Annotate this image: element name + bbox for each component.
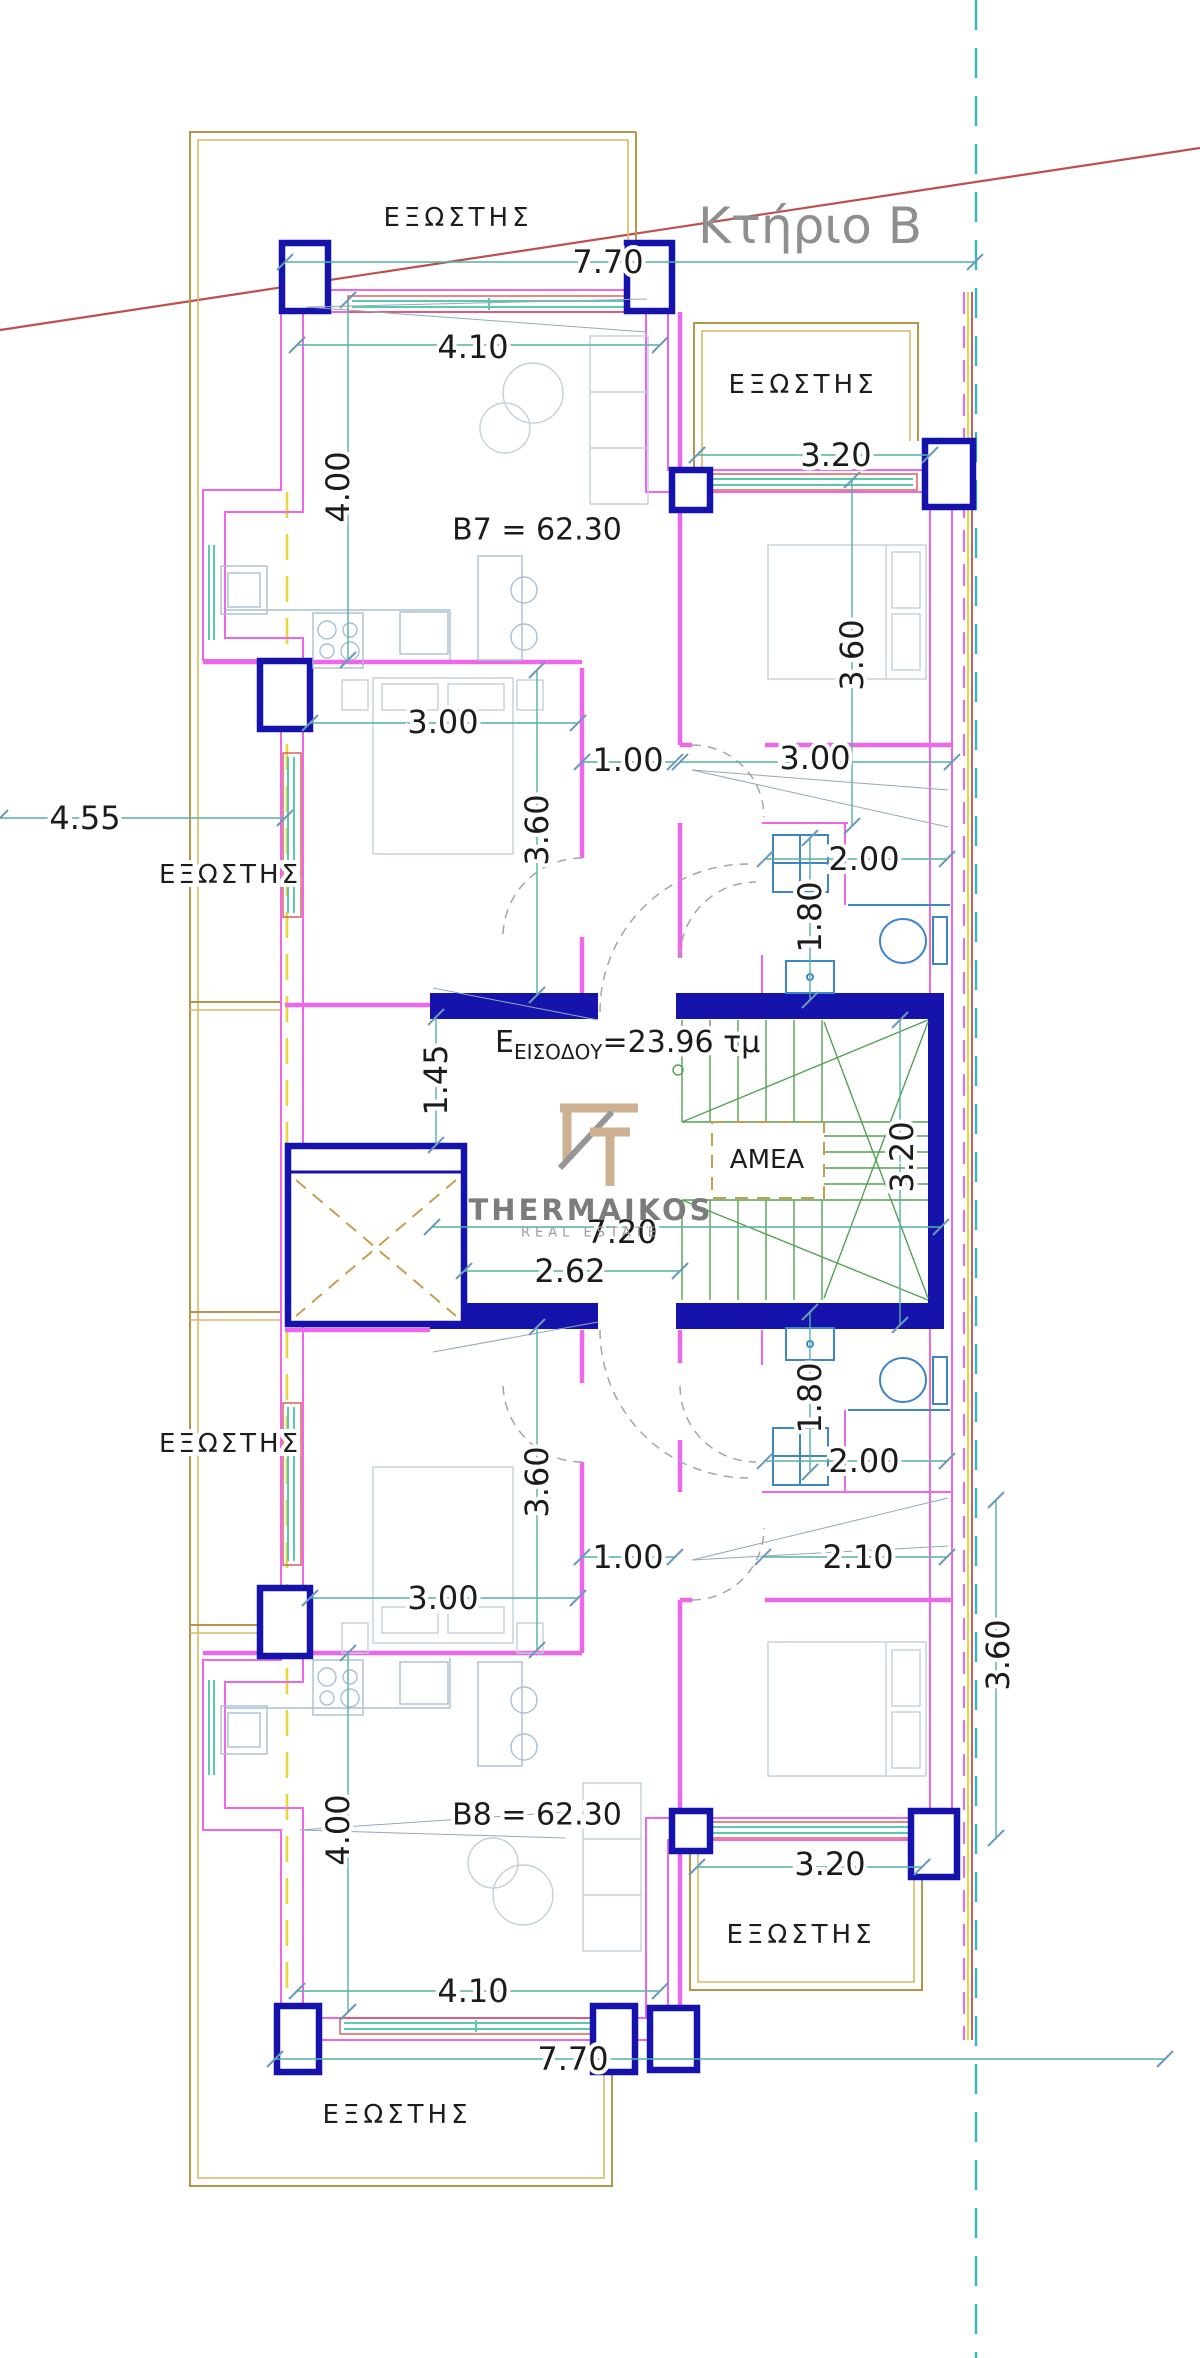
dim-320-stair: 3.20 <box>883 1121 921 1192</box>
dim-400-upper: 4.00 <box>319 451 357 522</box>
column <box>282 243 328 311</box>
sofa-upper <box>590 336 648 504</box>
fridge-upper <box>400 612 448 654</box>
dim-410-top: 4.10 <box>437 328 508 366</box>
dim-360-upper-left: 3.60 <box>518 794 556 865</box>
column <box>672 1811 710 1851</box>
dim-320-top-right: 3.20 <box>800 436 871 474</box>
balcony-label-bottom-right: ΕΞΩΣΤΗΣ <box>726 1920 875 1950</box>
dining-table-upper <box>503 363 563 423</box>
balcony-label-left-lower: ΕΞΩΣΤΗΣ <box>159 1429 301 1459</box>
section-diagonal-line <box>0 148 1200 330</box>
room-label-b8: B8 = 62.30 <box>452 1798 622 1833</box>
stairwell-wall-right <box>928 993 944 1329</box>
dim-180-lower-bath: 1.80 <box>791 1362 829 1433</box>
dim-455-left: 4.55 <box>49 799 120 837</box>
bed-bottom-right <box>768 1642 926 1776</box>
fridge-lower <box>400 1662 448 1704</box>
label-entrance-area: ΕΕΙΣΟΔΟΥ=23.96 τμ <box>495 1025 760 1064</box>
door-bedroom-ul <box>503 858 582 937</box>
door-bedroom-tr <box>692 745 764 817</box>
balcony-label-top-right: ΕΞΩΣΤΗΣ <box>728 370 877 400</box>
column <box>260 661 310 729</box>
island-upper <box>478 556 522 660</box>
dim-360-lower-left: 3.60 <box>518 1446 556 1517</box>
door-bedroom-br <box>692 1528 764 1600</box>
dim-300-upper-left: 3.00 <box>407 703 478 741</box>
floor-plan-page: Κτήριο ΒΕΞΩΣΤΗΣΕΞΩΣΤΗΣΕΞΩΣΤΗΣΕΞΩΣΤΗΣΕΞΩΣ… <box>0 0 1200 2358</box>
column <box>650 2008 697 2070</box>
thermaikos-logo-icon <box>560 1108 638 1186</box>
column <box>672 470 710 510</box>
toilet-upper <box>880 919 926 963</box>
dim-100-lower: 1.00 <box>592 1538 663 1576</box>
dim-300-upper-right: 3.00 <box>779 739 850 777</box>
stove-lower <box>313 1660 363 1715</box>
door-bath-upper <box>680 882 756 958</box>
door-entry-b7 <box>600 864 748 1012</box>
dim-410-bottom: 4.10 <box>437 1972 508 2010</box>
room-label-b7: B7 = 62.30 <box>452 513 622 548</box>
dim-210-lower: 2.10 <box>822 1538 893 1576</box>
island-lower <box>478 1662 522 1766</box>
dim-100-upper: 1.00 <box>592 741 663 779</box>
column <box>260 1588 310 1656</box>
watermark-tagline: REAL ESTATE <box>521 1226 661 1241</box>
label-amea: AMEA <box>730 1145 805 1175</box>
balcony-label-bottom: ΕΞΩΣΤΗΣ <box>322 2100 471 2130</box>
dim-360-right: 3.60 <box>979 1619 1017 1690</box>
toilet-lower <box>880 1358 926 1402</box>
column <box>277 2006 319 2072</box>
floor-plan-drawing: Κτήριο ΒΕΞΩΣΤΗΣΕΞΩΣΤΗΣΕΞΩΣΤΗΣΕΞΩΣΤΗΣΕΞΩΣ… <box>0 0 1200 2358</box>
balcony-label-left-upper: ΕΞΩΣΤΗΣ <box>159 860 301 890</box>
building-title: Κτήριο Β <box>698 197 922 255</box>
dim-400-lower: 4.00 <box>319 1794 357 1865</box>
dim-770-bottom: 7.70 <box>537 2040 608 2078</box>
dim-360-top-right: 3.60 <box>833 619 871 690</box>
dim-200-upper-bath: 2.00 <box>828 840 899 878</box>
column <box>925 441 973 507</box>
dim-145-hall: 1.45 <box>417 1044 455 1115</box>
window-bedroom-br <box>700 1822 915 1838</box>
watermark-brand: THERMAIKOS <box>469 1193 714 1227</box>
door-bath-lower <box>680 1386 756 1462</box>
dim-300-lower-left: 3.00 <box>407 1579 478 1617</box>
dim-262-hall: 2.62 <box>534 1252 605 1290</box>
dim-180-upper-bath: 1.80 <box>791 881 829 952</box>
balcony-label-top: ΕΞΩΣΤΗΣ <box>383 203 532 233</box>
window-bedroom-tr <box>700 474 917 490</box>
dim-200-lower-bath: 2.00 <box>828 1442 899 1480</box>
dim-320-bottom-right: 3.20 <box>794 1845 865 1883</box>
dining-table-lower <box>493 1865 553 1925</box>
dim-770-top: 7.70 <box>572 243 643 281</box>
